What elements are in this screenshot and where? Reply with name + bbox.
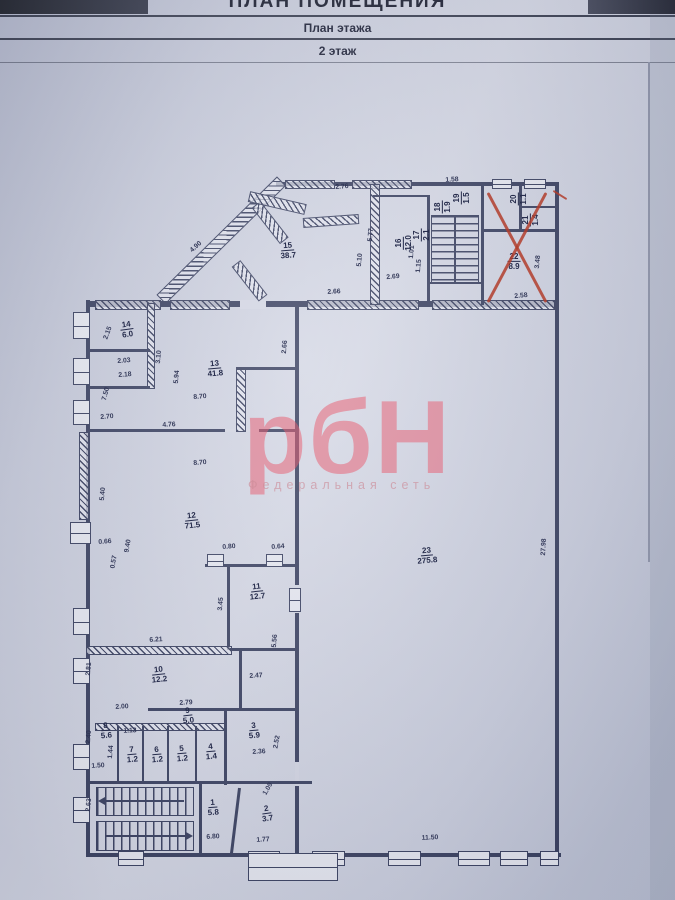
window	[524, 179, 546, 189]
hatched-wall	[307, 300, 419, 310]
hatched-wall	[95, 723, 227, 731]
wall-slanted	[230, 788, 241, 854]
dimension-label: 2.66	[327, 288, 341, 296]
room-label-6: 61.2	[151, 745, 164, 764]
dimension-label: 5.10	[356, 253, 364, 267]
wall	[555, 182, 559, 857]
dimension-label: 2.63	[85, 798, 93, 812]
room-label-19: 191.5	[453, 192, 471, 205]
stair-arrow-left-icon	[98, 797, 105, 805]
window-hatch	[285, 180, 335, 189]
dimension-label: 1.15	[415, 259, 423, 273]
window	[540, 851, 559, 866]
dimension-label: 2.52	[272, 735, 281, 749]
room-label-15: 1538.7	[280, 241, 297, 260]
dimension-label: 0.80	[222, 543, 236, 551]
window	[73, 744, 90, 770]
dimension-label: 2.70	[100, 413, 114, 421]
door-gap	[240, 300, 266, 309]
room-label-10: 1012.2	[150, 665, 167, 685]
dimension-label: 11.50	[422, 834, 439, 842]
room-label-23: 23275.8	[416, 546, 438, 566]
room-label-12: 1271.5	[183, 511, 200, 531]
dimension-label: 3.10	[155, 350, 163, 364]
hatched-wall	[432, 300, 555, 310]
dimension-label: 2.66	[281, 340, 289, 354]
dimension-label: 2.18	[118, 371, 132, 379]
wall	[142, 726, 144, 783]
hatched-wall	[232, 260, 268, 301]
room-label-16: 1612.0	[395, 235, 413, 251]
wall	[167, 726, 169, 783]
wall	[373, 195, 430, 197]
dimension-label: 0.64	[271, 543, 285, 551]
dimension-label: 2.47	[249, 672, 263, 680]
wall	[227, 565, 230, 650]
staircase-lower-flight-up	[96, 787, 194, 816]
window	[73, 312, 90, 339]
porch-step	[248, 853, 338, 881]
dimension-label: 8.70	[193, 393, 207, 401]
room-label-1: 15.8	[207, 798, 219, 817]
dimension-label: 27.98	[540, 538, 548, 555]
room-label-5: 51.2	[176, 744, 189, 763]
hatched-wall	[370, 184, 380, 305]
window	[118, 851, 144, 866]
wall	[195, 726, 197, 783]
dimension-label: 4.76	[162, 421, 176, 429]
watermark-logo: рбН	[243, 392, 452, 486]
wall	[236, 367, 296, 370]
room-label-4: 41.4	[205, 742, 218, 761]
hatched-wall	[170, 300, 230, 310]
dimension-label: 1.77	[256, 836, 270, 844]
room-label-11: 1112.7	[248, 582, 265, 602]
dimension-label: 5.94	[173, 370, 181, 384]
wall	[224, 708, 227, 785]
stair-divider	[454, 215, 456, 283]
room-label-8: 85.6	[100, 721, 113, 740]
photographed-floor-plan-page: ПЛАН ПОМЕЩЕНИЯ План этажа 2 этаж	[0, 0, 675, 900]
window-hatch	[352, 180, 412, 189]
dimension-label: 2.40	[85, 730, 93, 744]
window	[73, 608, 90, 635]
window-hatch	[79, 432, 89, 520]
dimension-label: 2.00	[115, 703, 129, 711]
hatched-wall	[86, 646, 232, 655]
dimension-label: 5.56	[271, 634, 279, 648]
dimension-label: 1.50	[91, 762, 105, 770]
wall	[481, 184, 484, 305]
wall	[427, 196, 430, 305]
door-leaf	[266, 554, 283, 567]
wall	[117, 726, 119, 783]
dimension-label: 6.21	[149, 636, 163, 644]
dimension-label: 1.58	[445, 176, 459, 184]
wall	[239, 650, 242, 710]
window	[70, 522, 91, 544]
hatched-wall	[303, 214, 360, 228]
wall	[86, 349, 150, 352]
window	[388, 851, 421, 866]
dimension-label: 5.77	[367, 228, 375, 242]
room-label-9: 95.0	[182, 706, 195, 725]
door-leaf	[289, 588, 301, 612]
dimension-label: 2.36	[252, 748, 266, 756]
wall	[148, 708, 296, 711]
room-label-7: 71.2	[126, 745, 139, 764]
room-label-17: 172.1	[413, 229, 431, 242]
room-label-13: 1341.8	[206, 359, 223, 379]
room-label-3: 35.9	[248, 721, 261, 740]
dimension-label: 1.44	[107, 745, 115, 759]
window	[492, 179, 512, 189]
stair-arrow-line	[106, 835, 186, 837]
dimension-label: 8.70	[193, 459, 207, 467]
room-label-14: 146.0	[119, 320, 134, 340]
dimension-label: 3.45	[217, 597, 225, 611]
dimension-label: 0.57	[109, 555, 118, 569]
dimension-label: 2.58	[514, 292, 528, 300]
dimension-label: 2.81	[85, 662, 93, 676]
window	[458, 851, 490, 866]
room-label-18: 181.9	[434, 201, 452, 214]
wall	[199, 783, 202, 855]
door-leaf	[207, 554, 224, 567]
dimension-label: 1.13	[123, 727, 137, 735]
dimension-label: 9.40	[123, 539, 132, 553]
dimension-label: 2.15	[102, 326, 113, 341]
dimension-label: 0.66	[98, 538, 112, 546]
dimension-label: 6.80	[206, 833, 220, 841]
dimension-label: 3.48	[534, 255, 542, 269]
dimension-label: 5.40	[99, 487, 107, 501]
wall	[427, 282, 482, 284]
window	[500, 851, 528, 866]
watermark-subtext: Федеральная сеть	[248, 478, 435, 492]
stair-arrow-line	[104, 800, 184, 802]
window	[73, 358, 90, 385]
window	[73, 400, 90, 425]
room-label-2: 23.7	[260, 804, 274, 824]
dimension-label: 2.76	[335, 183, 349, 191]
dimension-label: 2.69	[386, 273, 400, 281]
dimension-label: 2.03	[117, 357, 131, 365]
wall	[86, 386, 150, 389]
stair-arrow-right-icon	[186, 832, 193, 840]
room-label-20: 201.1	[510, 193, 528, 206]
hatched-wall	[147, 303, 155, 389]
